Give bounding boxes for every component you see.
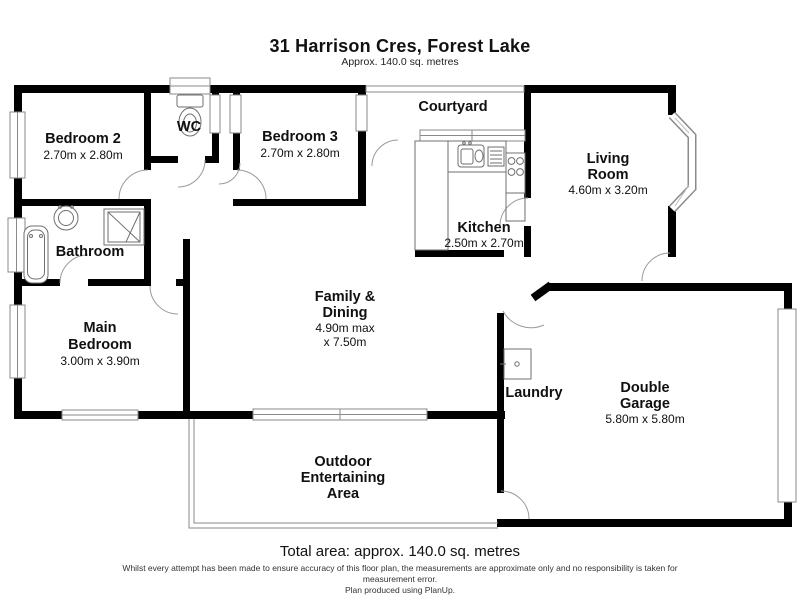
svg-text:Main: Main bbox=[83, 320, 116, 336]
laundry-door-arc bbox=[503, 311, 544, 328]
courtyard-entry-door-arc bbox=[372, 140, 398, 166]
room-label-living-room: Living Room 4.60m x 3.20m bbox=[568, 151, 647, 197]
svg-text:Bedroom 2: Bedroom 2 bbox=[45, 131, 121, 147]
svg-text:Garage: Garage bbox=[620, 396, 670, 412]
room-label-outdoor-area: Outdoor Entertaining Area bbox=[301, 454, 386, 502]
svg-text:5.80m x 5.80m: 5.80m x 5.80m bbox=[605, 412, 684, 426]
svg-text:Family &: Family & bbox=[315, 289, 376, 305]
svg-text:WC: WC bbox=[177, 119, 202, 135]
garage-rear-door-arc bbox=[501, 491, 529, 519]
room-label-laundry: Laundry bbox=[505, 385, 562, 401]
main-bedroom-door-arc bbox=[150, 286, 178, 314]
bathtub-icon bbox=[24, 226, 48, 283]
svg-text:4.60m x 3.20m: 4.60m x 3.20m bbox=[568, 183, 647, 197]
svg-text:Dining: Dining bbox=[322, 305, 367, 321]
washing-machine-icon bbox=[500, 349, 531, 379]
floor-plan-page: 31 Harrison Cres, Forest Lake Approx. 14… bbox=[0, 0, 800, 600]
svg-text:Room: Room bbox=[587, 167, 628, 183]
svg-text:Double: Double bbox=[620, 380, 669, 396]
svg-text:x 7.50m: x 7.50m bbox=[324, 335, 367, 349]
disclaimer-line2: measurement error. bbox=[0, 574, 800, 584]
svg-text:2.50m x 2.70m: 2.50m x 2.70m bbox=[444, 236, 523, 250]
room-label-main-bedroom: Main Bedroom 3.00m x 3.90m bbox=[60, 320, 139, 368]
main-bedroom-side-window bbox=[10, 305, 25, 378]
total-area-text: Total area: approx. 140.0 sq. metres bbox=[0, 543, 800, 560]
svg-text:2.70m x 2.80m: 2.70m x 2.80m bbox=[260, 146, 339, 160]
svg-text:4.90m max: 4.90m max bbox=[315, 321, 374, 335]
wc-door-arc bbox=[178, 160, 205, 187]
bedroom2-window bbox=[10, 112, 25, 178]
courtyard-fence bbox=[366, 86, 524, 92]
svg-text:Bedroom 3: Bedroom 3 bbox=[262, 129, 338, 145]
bedroom3-door-arc bbox=[237, 170, 266, 199]
room-label-bathroom: Bathroom bbox=[56, 244, 124, 260]
main-bedroom-bottom-window bbox=[62, 410, 138, 420]
svg-text:Bathroom: Bathroom bbox=[56, 244, 124, 260]
walls bbox=[14, 85, 792, 527]
wc-window bbox=[170, 78, 210, 94]
plan-credit-text: Plan produced using PlanUp. bbox=[0, 585, 800, 595]
room-label-bedroom2: Bedroom 2 2.70m x 2.80m bbox=[43, 131, 122, 162]
disclaimer-line1: Whilst every attempt has been made to en… bbox=[0, 563, 800, 573]
room-label-double-garage: Double Garage 5.80m x 5.80m bbox=[605, 380, 684, 426]
room-label-family-dining: Family & Dining 4.90m max x 7.50m bbox=[315, 289, 376, 349]
bedroom3-right-window bbox=[356, 95, 367, 131]
bedroom2-door-arc bbox=[119, 170, 148, 199]
svg-text:Kitchen: Kitchen bbox=[457, 220, 510, 236]
svg-text:Outdoor: Outdoor bbox=[314, 454, 372, 470]
room-label-kitchen: Kitchen 2.50m x 2.70m bbox=[444, 220, 523, 250]
room-label-courtyard: Courtyard bbox=[418, 99, 487, 115]
living-to-garage-door-arc bbox=[642, 253, 670, 281]
courtyard-sliding-door bbox=[420, 130, 525, 141]
bathroom-window bbox=[8, 218, 25, 272]
svg-text:Laundry: Laundry bbox=[505, 385, 562, 401]
room-label-wc: WC bbox=[177, 119, 202, 135]
svg-text:Entertaining: Entertaining bbox=[301, 470, 386, 486]
bathroom-sink-icon bbox=[54, 206, 78, 230]
kitchen-sink-icon bbox=[458, 142, 504, 167]
shower-icon bbox=[104, 209, 144, 245]
entry-side-window-left bbox=[210, 95, 220, 133]
svg-text:Living: Living bbox=[587, 151, 630, 167]
svg-text:2.70m x 2.80m: 2.70m x 2.80m bbox=[43, 148, 122, 162]
svg-text:Bedroom: Bedroom bbox=[68, 337, 132, 353]
bedroom3-left-window bbox=[230, 95, 241, 133]
room-label-bedroom3: Bedroom 3 2.70m x 2.80m bbox=[260, 129, 339, 160]
svg-text:Area: Area bbox=[327, 486, 360, 502]
bay-window bbox=[672, 115, 692, 209]
svg-text:3.00m x 3.90m: 3.00m x 3.90m bbox=[60, 354, 139, 368]
drainer bbox=[488, 147, 504, 166]
svg-text:Courtyard: Courtyard bbox=[418, 99, 487, 115]
garage-door bbox=[778, 309, 796, 502]
family-sliding-door bbox=[253, 409, 427, 420]
stove-icon bbox=[506, 153, 525, 221]
floor-plan-drawing: Bedroom 2 2.70m x 2.80m WC Bedroom 3 2.7… bbox=[0, 0, 800, 600]
